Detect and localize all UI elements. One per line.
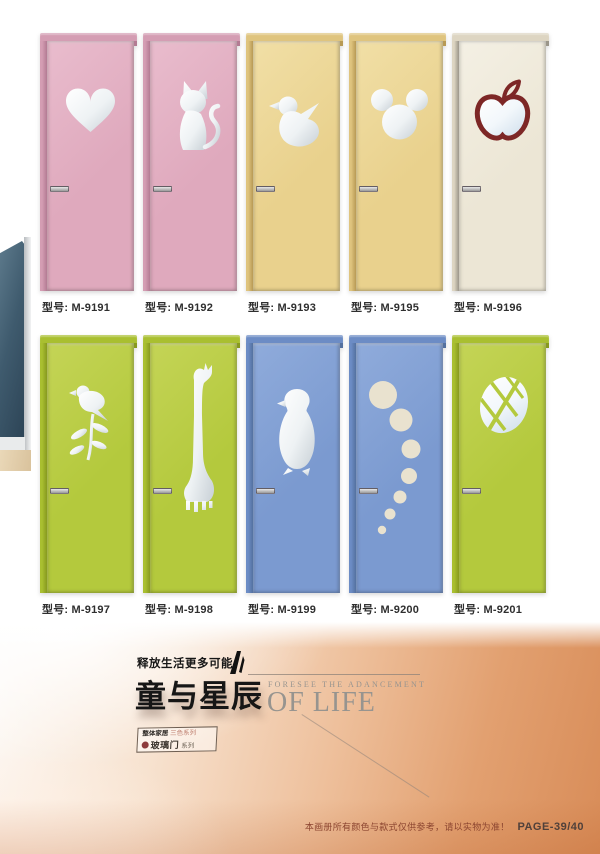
door-handle: [153, 488, 172, 494]
bird-cutout-icon: [47, 343, 134, 593]
photo-door-panel: [0, 241, 25, 443]
door-image: [40, 335, 137, 593]
door-handle: [462, 488, 481, 494]
door-jamb: [452, 41, 459, 291]
door-jamb: [349, 343, 356, 593]
door-handle: [256, 186, 275, 192]
door-model-label: 型号: M-9191: [40, 299, 137, 315]
photo-door-frame: [24, 237, 31, 451]
photo-baseboard: [0, 437, 25, 450]
duck-cutout-icon: [253, 41, 340, 291]
leaf-cutout-icon: [459, 343, 546, 593]
door-handle: [462, 186, 481, 192]
door-product-card: 型号: M-9193: [246, 33, 343, 315]
door-image: [143, 335, 240, 593]
heart-cutout-icon: [47, 41, 134, 291]
door-model-label: 型号: M-9196: [452, 299, 549, 315]
door-product-card: 型号: M-9198: [143, 335, 240, 617]
door-product-card: 型号: M-9191: [40, 33, 137, 315]
door-product-card: 型号: M-9201: [452, 335, 549, 617]
door-model-label: 型号: M-9193: [246, 299, 343, 315]
bubbles-cutout-icon: [356, 343, 443, 593]
banner-subtitle-large: OF LIFE: [267, 687, 376, 719]
page-number: PAGE-39/40: [517, 821, 584, 833]
photo-wood-floor: [0, 450, 31, 471]
door-image: [349, 33, 446, 291]
door-slab: [459, 343, 546, 593]
door-jamb: [246, 343, 253, 593]
door-model-label: 型号: M-9199: [246, 601, 343, 617]
banner-tagline: 释放生活更多可能: [137, 655, 233, 671]
door-model-label: 型号: M-9200: [349, 601, 446, 617]
door-product-card: 型号: M-9196: [452, 33, 549, 315]
door-image: [143, 33, 240, 291]
door-jamb: [246, 41, 253, 291]
door-model-label: 型号: M-9201: [452, 601, 549, 617]
door-handle: [359, 488, 378, 494]
series-badge-line1: 整体家居 三色系列: [142, 729, 212, 737]
door-handle: [50, 186, 69, 192]
door-product-card: 型号: M-9195: [349, 33, 446, 315]
room-photo-sliver: [0, 231, 31, 471]
apple-cutout-icon: [459, 41, 546, 291]
door-model-label: 型号: M-9195: [349, 299, 446, 315]
door-image: [452, 335, 549, 593]
door-handle: [359, 186, 378, 192]
divider-line: [248, 674, 420, 675]
door-slab: [47, 41, 134, 291]
cat-cutout-icon: [150, 41, 237, 291]
door-jamb: [349, 41, 356, 291]
door-slab: [356, 343, 443, 593]
door-slab: [253, 343, 340, 593]
door-handle: [256, 488, 275, 494]
series-badge-line2: 玻璃门 系列: [141, 737, 212, 751]
door-model-label: 型号: M-9197: [40, 601, 137, 617]
door-image: [246, 33, 343, 291]
door-slab: [253, 41, 340, 291]
brand-dot-icon: [142, 741, 149, 748]
door-image: [246, 335, 343, 593]
door-row-1: 型号: M-9191 型号: M-9192: [40, 33, 549, 315]
door-slab: [150, 343, 237, 593]
penguin-cutout-icon: [253, 343, 340, 593]
door-product-card: 型号: M-9199: [246, 335, 343, 617]
door-product-card: 型号: M-9200: [349, 335, 446, 617]
door-jamb: [40, 343, 47, 593]
door-slab: [356, 41, 443, 291]
door-jamb: [143, 41, 150, 291]
page-footer: 本画册所有颜色与款式仅供参考，请以实物为准！ PAGE-39/40: [305, 820, 584, 833]
door-jamb: [143, 343, 150, 593]
door-model-label: 型号: M-9192: [143, 299, 240, 315]
door-product-card: 型号: M-9197: [40, 335, 137, 617]
series-badge: 整体家居 三色系列 玻璃门 系列: [136, 726, 217, 752]
door-image: [349, 335, 446, 593]
door-jamb: [40, 41, 47, 291]
door-handle: [50, 488, 69, 494]
door-product-card: 型号: M-9192: [143, 33, 240, 315]
door-model-label: 型号: M-9198: [143, 601, 240, 617]
door-slab: [150, 41, 237, 291]
door-image: [40, 33, 137, 291]
door-slab: [47, 343, 134, 593]
door-slab: [459, 41, 546, 291]
giraffe-cutout-icon: [150, 343, 237, 593]
door-handle: [153, 186, 172, 192]
door-jamb: [452, 343, 459, 593]
mickey-cutout-icon: [356, 41, 443, 291]
disclaimer-text: 本画册所有颜色与款式仅供参考，请以实物为准！: [305, 820, 510, 833]
door-image: [452, 33, 549, 291]
catalog-page: 型号: M-9191 型号: M-9192: [0, 0, 600, 854]
door-row-2: 型号: M-9197 型号: M-9198: [40, 335, 549, 617]
banner-title: 童与星辰: [135, 671, 263, 716]
